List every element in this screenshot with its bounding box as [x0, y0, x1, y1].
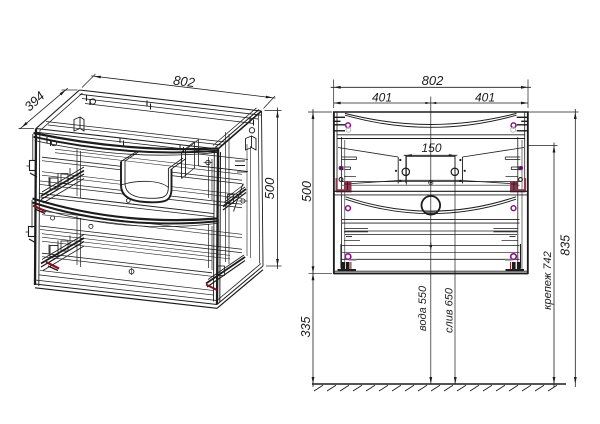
svg-text:500: 500 [262, 177, 277, 199]
svg-text:802: 802 [422, 73, 444, 88]
svg-text:вода 550: вода 550 [417, 285, 429, 331]
svg-text:500: 500 [300, 181, 314, 202]
svg-text:335: 335 [299, 317, 313, 338]
svg-text:401: 401 [475, 90, 495, 104]
svg-text:слив 650: слив 650 [443, 287, 455, 333]
svg-text:835: 835 [559, 235, 573, 256]
svg-text:802: 802 [172, 73, 196, 91]
svg-text:401: 401 [372, 90, 392, 104]
svg-text:крепеж 742: крепеж 742 [542, 251, 554, 309]
svg-text:150: 150 [421, 141, 441, 155]
